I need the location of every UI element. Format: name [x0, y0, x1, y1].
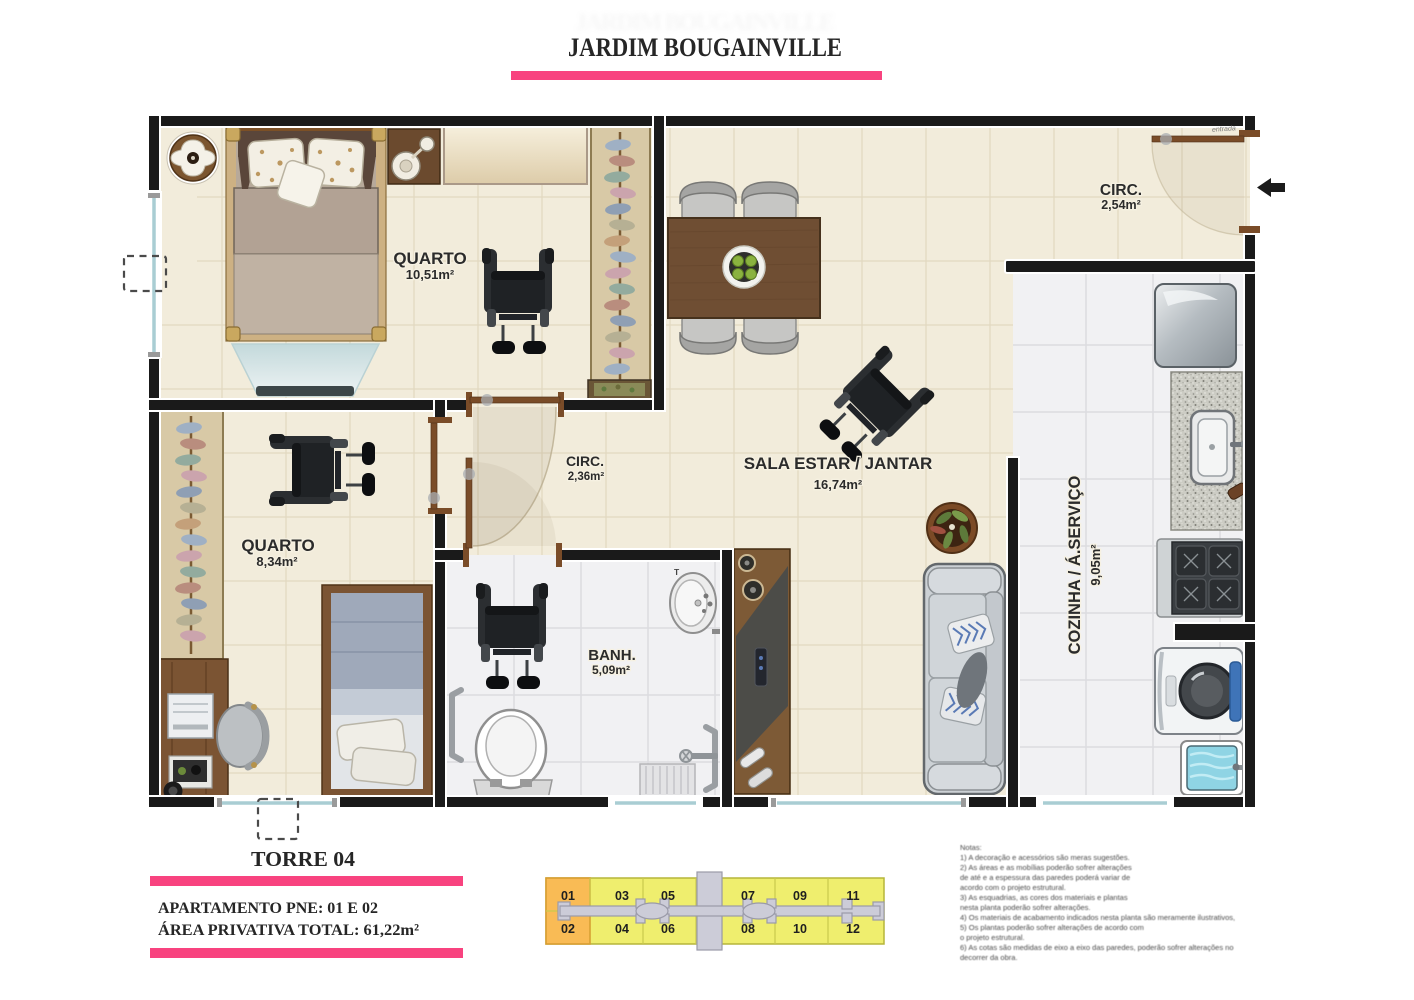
svg-text:16,74m²: 16,74m²	[814, 477, 863, 492]
svg-text:05: 05	[661, 889, 675, 903]
svg-text:TORRE 04: TORRE 04	[251, 847, 356, 871]
svg-text:06: 06	[661, 922, 675, 936]
svg-text:01: 01	[561, 889, 575, 903]
svg-text:4) Os materiais de acabamento: 4) Os materiais de acabamento indicados …	[960, 913, 1235, 922]
svg-text:SALA ESTAR / JANTAR: SALA ESTAR / JANTAR	[744, 454, 933, 473]
svg-text:11: 11	[846, 889, 859, 903]
svg-text:08: 08	[741, 922, 755, 936]
svg-text:T: T	[674, 567, 680, 577]
svg-text:5,09m²: 5,09m²	[592, 663, 630, 677]
svg-text:03: 03	[615, 889, 629, 903]
svg-text:5) Os plantas poderão sofrer a: 5) Os plantas poderão sofrer alterações …	[960, 923, 1144, 932]
svg-text:12: 12	[846, 922, 860, 936]
svg-text:1) A decoração e acessórios sã: 1) A decoração e acessórios são meras su…	[960, 853, 1130, 862]
svg-text:2,54m²: 2,54m²	[1101, 198, 1141, 212]
svg-text:o projeto estrutural.: o projeto estrutural.	[960, 933, 1025, 942]
svg-text:JARDIM BOUGAINVILLE: JARDIM BOUGAINVILLE	[568, 33, 842, 62]
svg-text:2) As áreas e as mobílias pode: 2) As áreas e as mobílias poderão sofrer…	[960, 863, 1132, 872]
svg-text:Notas:: Notas:	[960, 843, 982, 852]
svg-text:QUARTO: QUARTO	[393, 249, 466, 268]
svg-text:nesta planta poderão sofrer al: nesta planta poderão sofrer alterações.	[960, 903, 1091, 912]
svg-text:10,51m²: 10,51m²	[406, 267, 455, 282]
svg-text:07: 07	[741, 889, 755, 903]
svg-text:CIRC.: CIRC.	[1100, 182, 1142, 199]
svg-text:8,34m²: 8,34m²	[256, 554, 298, 569]
svg-text:de até e a espessura das pared: de até e a espessura das paredes poderá …	[960, 873, 1130, 882]
svg-text:09: 09	[793, 889, 807, 903]
svg-text:10: 10	[793, 922, 807, 936]
svg-text:BANH.: BANH.	[588, 647, 636, 664]
svg-text:decorrer da obra.: decorrer da obra.	[960, 953, 1018, 962]
svg-text:6) As cotas são medidas de eix: 6) As cotas são medidas de eixo a eixo d…	[960, 943, 1234, 952]
svg-text:9,05m²: 9,05m²	[1088, 544, 1103, 586]
svg-text:COZINHA / Á.SERVIÇO: COZINHA / Á.SERVIÇO	[1065, 475, 1084, 654]
svg-text:QUARTO: QUARTO	[241, 536, 314, 555]
svg-text:3) As esquadrias, as cores dos: 3) As esquadrias, as cores dos materiais…	[960, 893, 1128, 902]
svg-text:ÁREA PRIVATIVA TOTAL: 61,22m²: ÁREA PRIVATIVA TOTAL: 61,22m²	[158, 920, 419, 939]
svg-text:02: 02	[561, 922, 575, 936]
svg-text:APARTAMENTO PNE: 01 E 02: APARTAMENTO PNE: 01 E 02	[158, 900, 378, 917]
svg-text:CIRC.: CIRC.	[566, 453, 604, 469]
svg-text:04: 04	[615, 922, 629, 936]
svg-text:acordo com o projeto estrutura: acordo com o projeto estrutural.	[960, 883, 1066, 892]
svg-text:2,36m²: 2,36m²	[568, 471, 605, 483]
